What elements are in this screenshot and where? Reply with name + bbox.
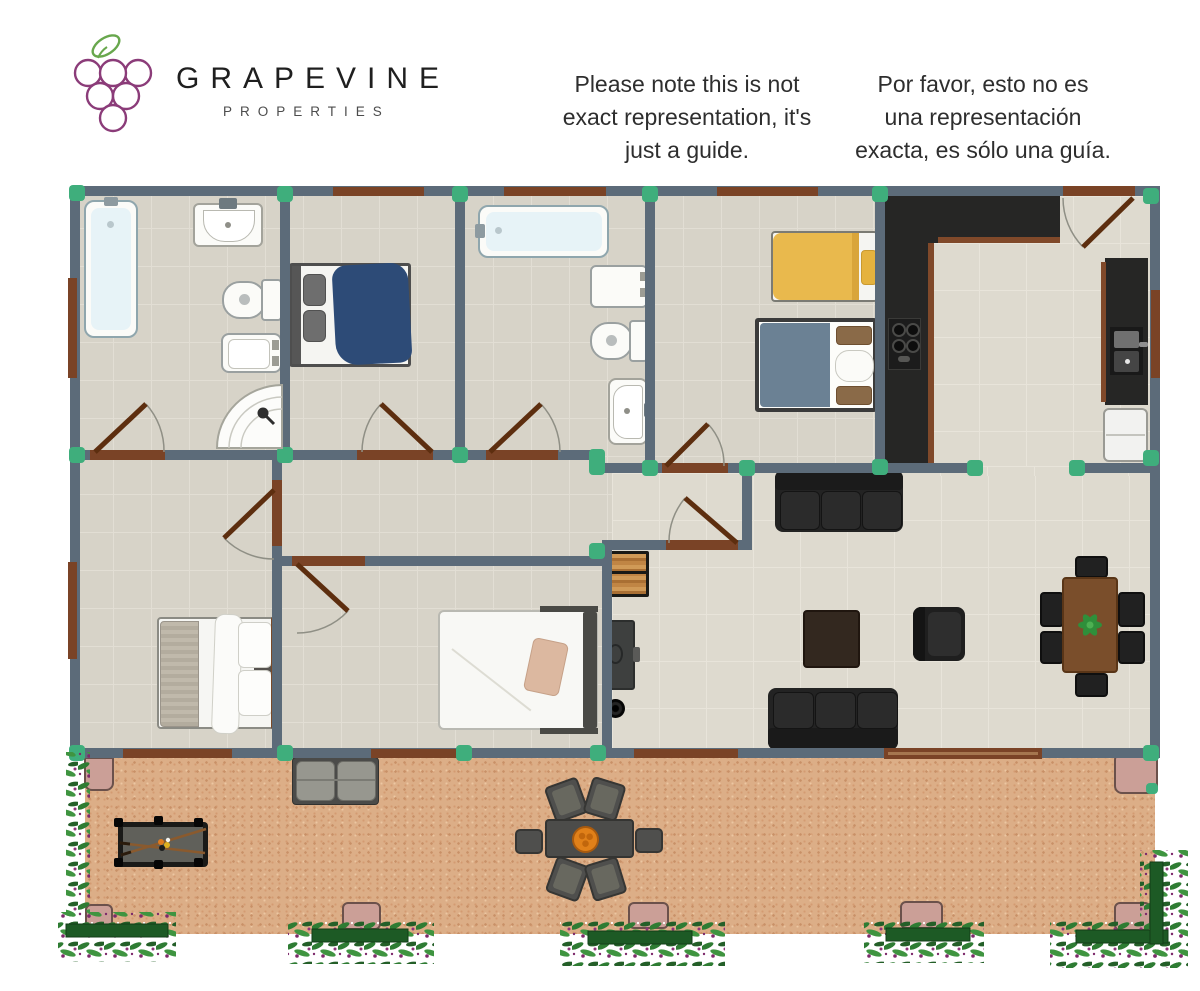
pool-ball [158,839,164,845]
pool-ball [166,838,170,842]
planter-box [886,928,970,941]
pool-ball [159,845,165,851]
door-kitchen-exterior [1063,198,1133,247]
planter-box [1150,862,1163,944]
door-bathroom1 [95,404,164,452]
door-bedroom-lower-left [224,490,274,559]
door-bedroom-a [362,404,432,452]
door-hallway-living [669,498,737,543]
pool-cues [120,829,206,855]
planter-box [312,929,408,942]
vine-planter [1140,850,1188,968]
planter-box [66,924,168,937]
door-bathroom2 [490,404,560,452]
planter-box [588,931,692,944]
table-plant-icon [1078,612,1102,637]
door-bedroom-b [666,424,724,466]
planters [58,752,1188,968]
door-bedroom-middle [297,564,348,633]
plan-annotations [0,0,1200,991]
floor-plan-page: GRAPEVINE PROPERTIES Please note this is… [0,0,1200,991]
pool-ball [164,842,170,848]
vine-planter [66,752,90,930]
corner-shower [217,385,282,448]
